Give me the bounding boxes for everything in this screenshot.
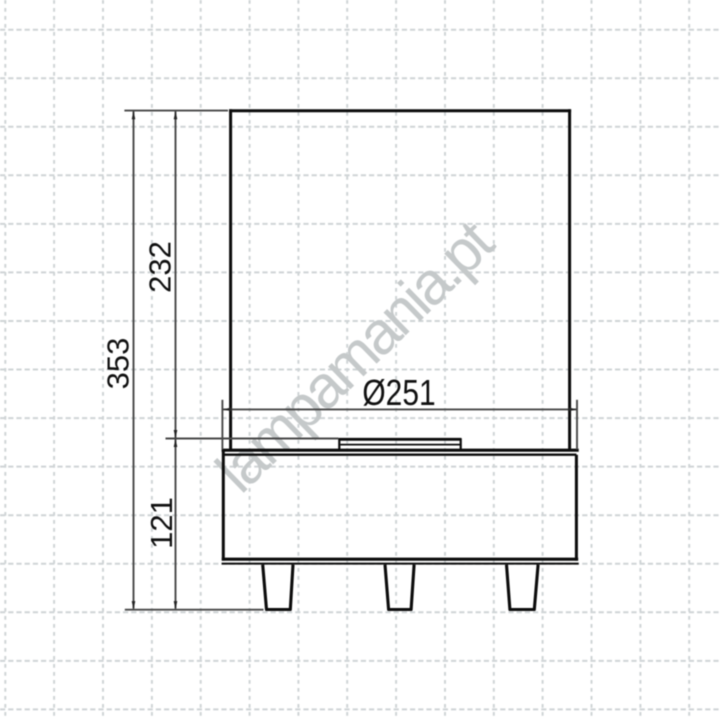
svg-text:121: 121 (144, 497, 179, 549)
svg-text:232: 232 (142, 241, 177, 293)
svg-text:353: 353 (100, 338, 135, 390)
svg-text:Ø251: Ø251 (362, 373, 435, 413)
